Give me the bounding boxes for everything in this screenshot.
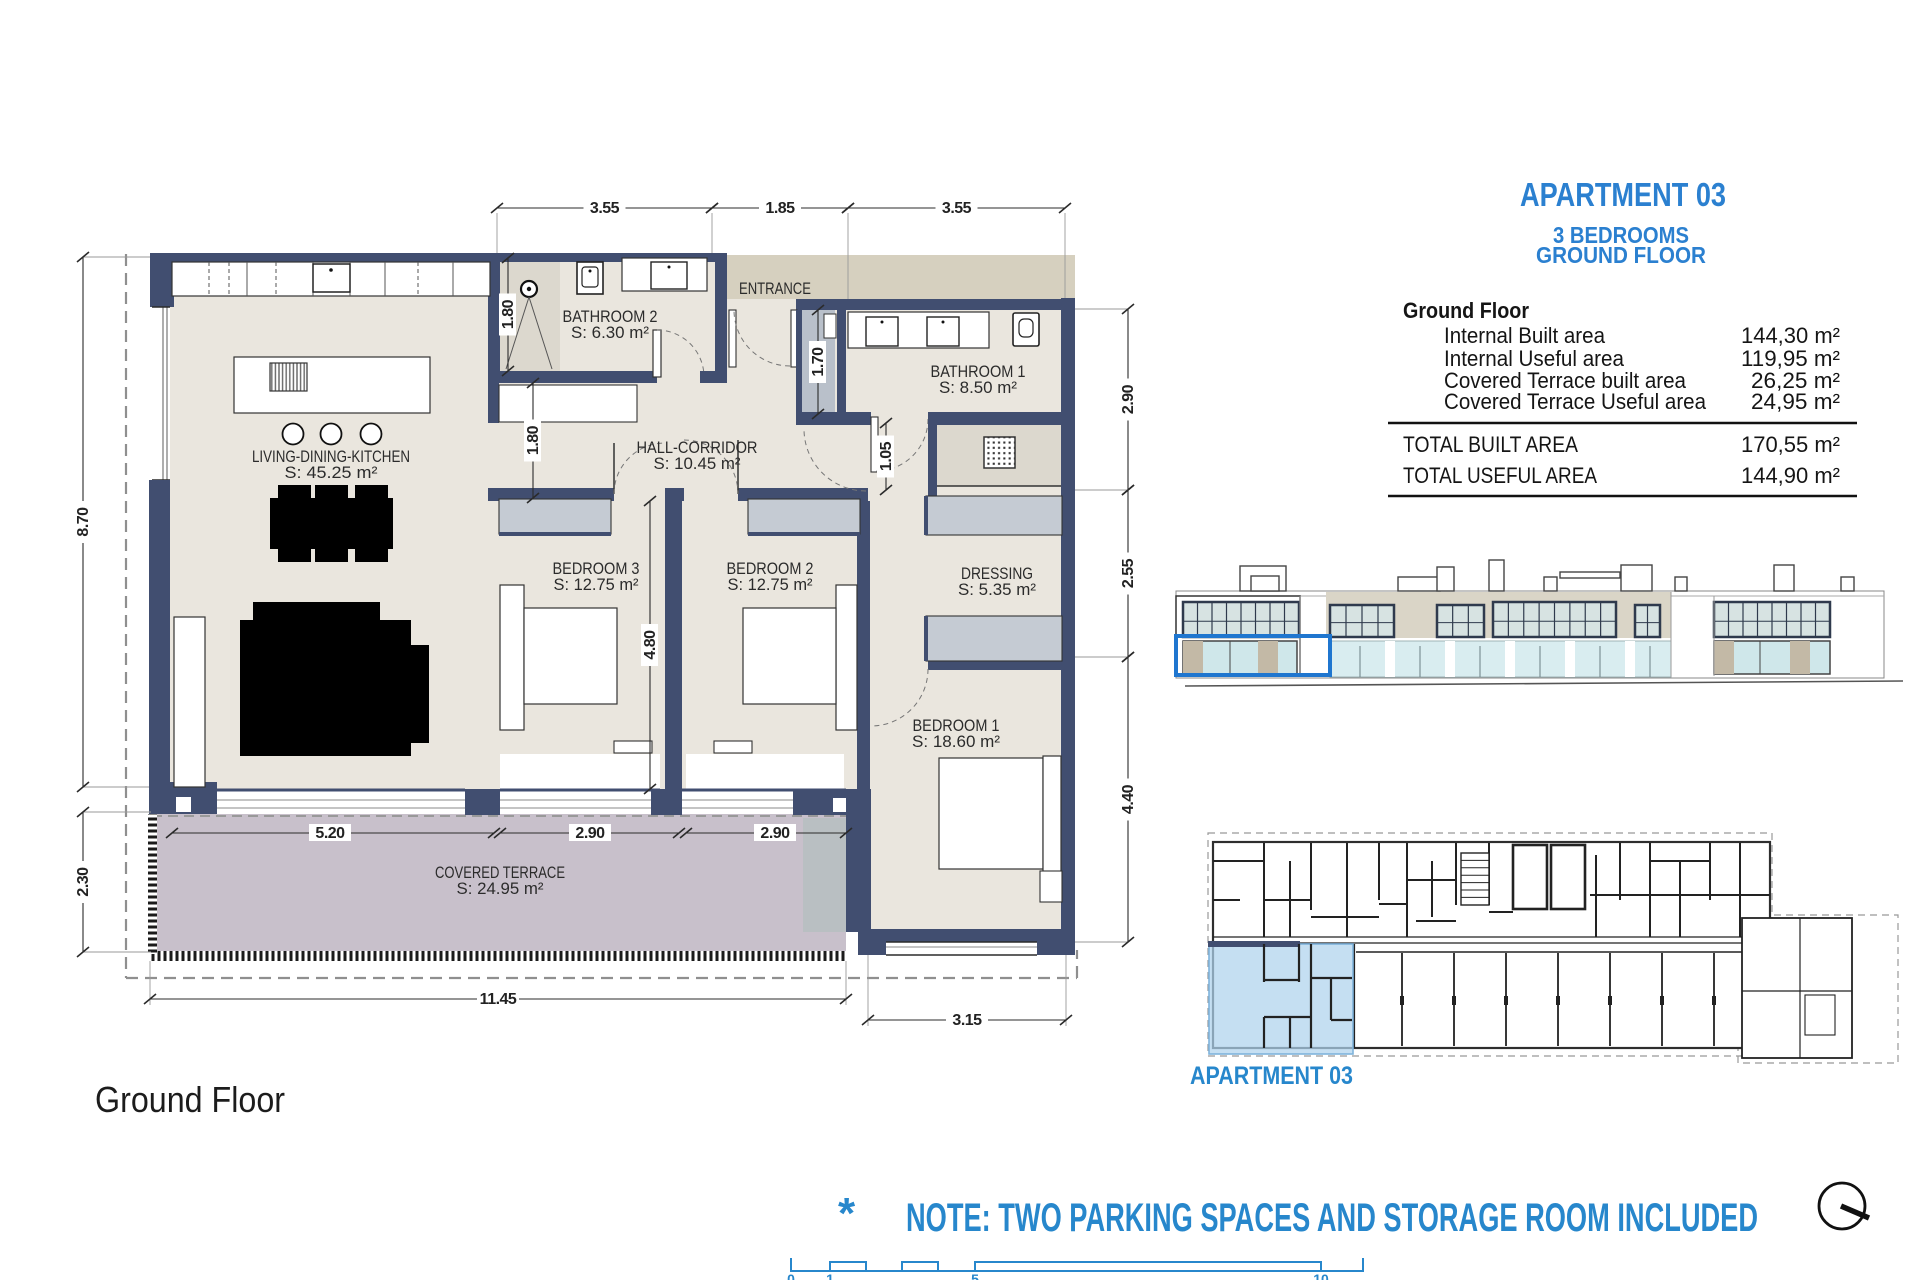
svg-text:S: 18.60 m²: S: 18.60 m² [912, 732, 1000, 751]
svg-text:3.55: 3.55 [590, 200, 620, 217]
svg-text:GROUND FLOOR: GROUND FLOOR [1536, 242, 1706, 268]
svg-text:Ground Floor: Ground Floor [1403, 298, 1529, 323]
svg-text:5.20: 5.20 [315, 825, 345, 842]
svg-text:S: 5.35 m²: S: 5.35 m² [958, 580, 1036, 599]
svg-text:8.70: 8.70 [75, 507, 92, 537]
svg-text:2.90: 2.90 [1120, 384, 1137, 414]
svg-text:1.85: 1.85 [765, 200, 795, 217]
svg-text:S: 6.30 m²: S: 6.30 m² [571, 323, 649, 342]
svg-text:S: 10.45 m²: S: 10.45 m² [654, 454, 741, 473]
svg-text:Covered Terrace Useful area: Covered Terrace Useful area [1444, 389, 1707, 414]
svg-text:*: * [838, 1189, 856, 1238]
svg-text:4.40: 4.40 [1120, 784, 1137, 814]
svg-text:1.05: 1.05 [878, 441, 895, 471]
svg-text:1.80: 1.80 [525, 425, 542, 455]
svg-text:24,95 m²: 24,95 m² [1751, 389, 1840, 414]
svg-text:3.15: 3.15 [952, 1012, 982, 1029]
svg-text:4.80: 4.80 [642, 630, 659, 660]
svg-text:Internal Built area: Internal Built area [1444, 323, 1606, 348]
svg-text:1.70: 1.70 [810, 347, 827, 377]
svg-text:11.45: 11.45 [480, 991, 517, 1008]
svg-text:2.55: 2.55 [1120, 558, 1137, 588]
svg-text:1.80: 1.80 [500, 299, 517, 329]
svg-text:170,55 m²: 170,55 m² [1741, 432, 1840, 457]
svg-text:ENTRANCE: ENTRANCE [739, 279, 811, 298]
svg-text:S: 45.25 m²: S: 45.25 m² [285, 463, 378, 482]
svg-text:S: 8.50 m²: S: 8.50 m² [939, 378, 1017, 397]
svg-text:TOTAL USEFUL AREA: TOTAL USEFUL AREA [1403, 463, 1597, 488]
svg-text:144,90 m²: 144,90 m² [1741, 463, 1840, 488]
svg-text:NOTE: TWO PARKING SPACES AND: NOTE: TWO PARKING SPACES AND STORAGE ROO… [906, 1196, 1758, 1240]
svg-text:5: 5 [971, 1271, 979, 1280]
svg-text:2.30: 2.30 [75, 867, 92, 897]
svg-text:144,30 m²: 144,30 m² [1741, 323, 1840, 348]
svg-text:1: 1 [826, 1271, 834, 1280]
svg-text:S: 24.95 m²: S: 24.95 m² [457, 879, 544, 898]
svg-text:APARTMENT 03: APARTMENT 03 [1520, 176, 1726, 213]
svg-text:TOTAL BUILT AREA: TOTAL BUILT AREA [1403, 432, 1578, 457]
svg-text:2.90: 2.90 [575, 825, 605, 842]
svg-text:APARTMENT 03: APARTMENT 03 [1190, 1062, 1353, 1090]
svg-text:Ground Floor: Ground Floor [95, 1079, 285, 1120]
svg-text:10: 10 [1313, 1271, 1329, 1280]
svg-text:0: 0 [787, 1271, 795, 1280]
svg-text:2.90: 2.90 [760, 825, 790, 842]
svg-text:3.55: 3.55 [942, 200, 972, 217]
svg-text:S: 12.75 m²: S: 12.75 m² [728, 575, 813, 594]
svg-text:S: 12.75 m²: S: 12.75 m² [554, 575, 639, 594]
